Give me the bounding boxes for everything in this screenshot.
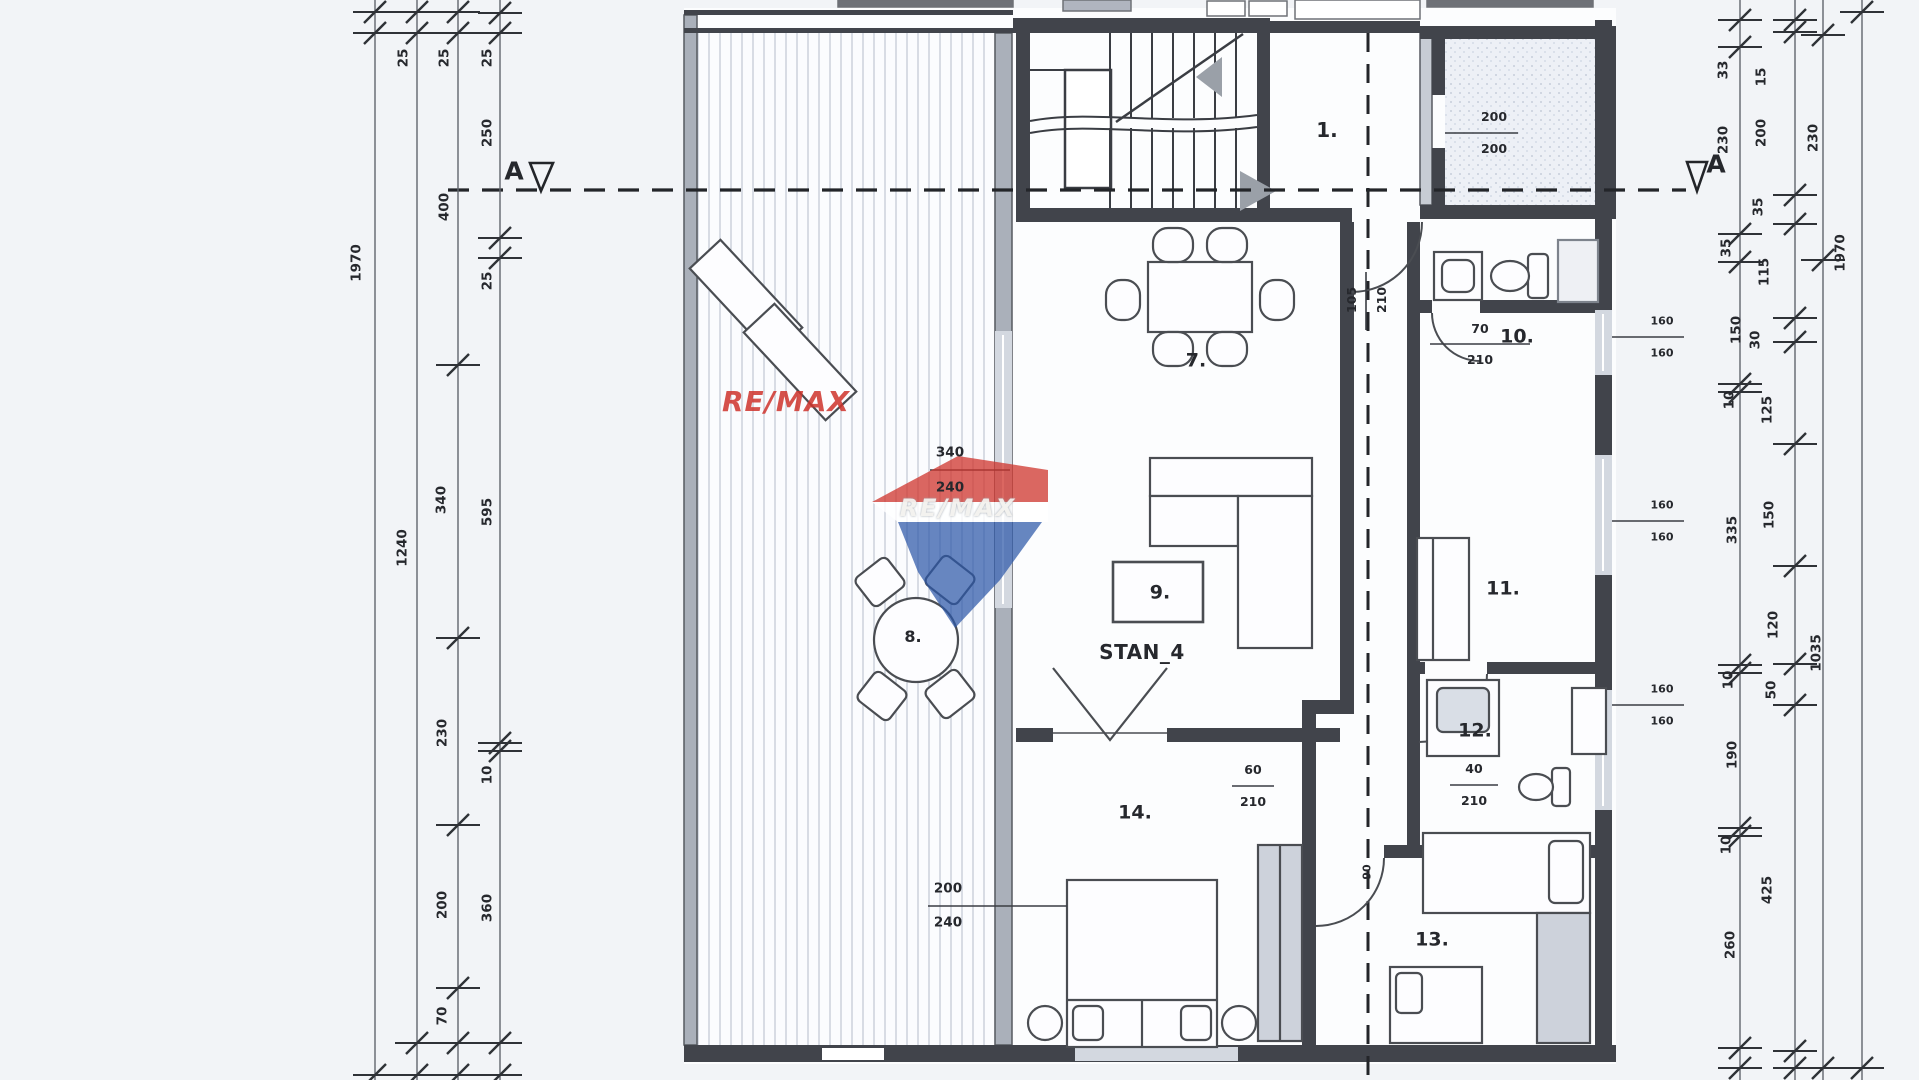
dim: 10	[1720, 836, 1734, 855]
window-dim: 200	[934, 882, 962, 896]
dim: 25	[481, 272, 495, 291]
sofa-seat	[1150, 496, 1238, 546]
dim: 35	[1720, 239, 1734, 258]
sofa-back	[1150, 458, 1312, 496]
apartment-label: STAN_4	[1099, 642, 1185, 662]
floor-plan-canvas: 1. 7. 8. 9. 10. 11. 12. 13. 14. STAN_4 A…	[0, 0, 1919, 1080]
dim: 150	[1763, 501, 1777, 529]
toilet-tank	[1552, 768, 1570, 806]
nightstand	[1222, 1006, 1256, 1040]
dim: 15	[1755, 68, 1769, 87]
window-dim: 160	[1651, 716, 1674, 727]
dining-table	[1148, 262, 1252, 332]
window-dim: 160	[1651, 500, 1674, 511]
dim: 335	[1726, 516, 1740, 544]
room-label-1: 1.	[1316, 120, 1338, 140]
dim: 595	[481, 498, 495, 526]
sofa-chaise	[1238, 496, 1312, 648]
chair	[1153, 228, 1193, 262]
dim: 150	[1730, 316, 1744, 344]
door-dim: 70	[1471, 323, 1488, 336]
dim: 25	[438, 49, 452, 68]
toilet-bowl	[1519, 774, 1553, 800]
dim: 230	[1717, 126, 1731, 154]
wardrobe	[1537, 913, 1590, 1043]
section-marker-left-icon	[530, 163, 553, 191]
door-dim: 210	[1376, 287, 1389, 313]
window-dim: 160	[1651, 684, 1674, 695]
door-dim: 90	[1362, 864, 1373, 879]
pillow	[1073, 1006, 1103, 1040]
chair	[1207, 332, 1247, 366]
dim: 120	[1767, 611, 1781, 639]
dim: 230	[436, 719, 450, 747]
dim: 125	[1761, 396, 1775, 424]
room-label-13: 13.	[1415, 931, 1449, 950]
door-dim: 60	[1244, 764, 1261, 777]
room-label-10: 10.	[1500, 328, 1534, 347]
dim: 190	[1726, 741, 1740, 769]
dim: 10	[1722, 671, 1736, 690]
shower-niche	[1558, 240, 1598, 302]
pillow	[1181, 1006, 1211, 1040]
dim: 25	[397, 49, 411, 68]
dim: 425	[1761, 876, 1775, 904]
dim: 115	[1758, 258, 1772, 286]
chair	[1106, 280, 1140, 320]
window-dim: 160	[1651, 316, 1674, 327]
dim: 33	[1717, 61, 1731, 80]
window-dim: 240	[936, 481, 964, 495]
remax-balloon-text: RE/MAX	[900, 496, 1017, 520]
wardrobe	[1417, 538, 1469, 660]
dim: 200	[436, 891, 450, 919]
dim: 260	[1724, 931, 1738, 959]
door-dim: 105	[1346, 287, 1359, 313]
dim: 1035	[1810, 634, 1824, 672]
dim: 70	[436, 1007, 450, 1026]
room-label-8: 8.	[904, 629, 921, 645]
door-dim: 210	[1467, 354, 1493, 367]
dim: 230	[1807, 124, 1821, 152]
dim: 10	[1723, 391, 1737, 410]
room-label-12: 12.	[1458, 722, 1492, 741]
dim: 10	[481, 766, 495, 785]
chair	[1260, 280, 1294, 320]
dim: 30	[1749, 331, 1763, 350]
window-dim: 240	[934, 916, 962, 930]
elevator-dim: 200	[1481, 111, 1507, 124]
dim: 50	[1765, 681, 1779, 700]
bath-sink	[1572, 688, 1606, 754]
dim: 35	[1752, 198, 1766, 217]
remax-wordmark: RE/MAX	[722, 388, 850, 416]
dim: 1970	[350, 244, 364, 282]
window-dim: 160	[1651, 348, 1674, 359]
elevator-shaft-fill	[1445, 33, 1600, 205]
dim: 200	[1755, 119, 1769, 147]
room-label-11: 11.	[1486, 580, 1520, 599]
elevator-dim: 200	[1481, 143, 1507, 156]
nightstand	[1028, 1006, 1062, 1040]
dim: 400	[438, 193, 452, 221]
window-dim: 160	[1651, 532, 1674, 543]
room-label-7: 7.	[1186, 352, 1206, 371]
toilet-bowl	[1491, 261, 1529, 291]
dim: 250	[481, 119, 495, 147]
dim: 25	[481, 49, 495, 68]
room-label-14: 14.	[1118, 804, 1152, 823]
section-label-right: A	[1706, 152, 1725, 177]
section-marker-right-icon	[1687, 162, 1707, 191]
section-label-left: A	[504, 159, 523, 184]
dim: 360	[481, 894, 495, 922]
dim: 1240	[396, 529, 410, 567]
dim: 1970	[1834, 234, 1848, 272]
dim: 340	[435, 486, 449, 514]
pillow	[1549, 841, 1583, 903]
door-dim: 210	[1240, 796, 1266, 809]
chair	[1207, 228, 1247, 262]
pillow	[1396, 973, 1422, 1013]
window-dim: 340	[936, 446, 964, 460]
toilet-tank	[1528, 254, 1548, 298]
room-label-9: 9.	[1150, 584, 1170, 603]
door-dim: 40	[1465, 763, 1482, 776]
door-dim: 210	[1461, 795, 1487, 808]
